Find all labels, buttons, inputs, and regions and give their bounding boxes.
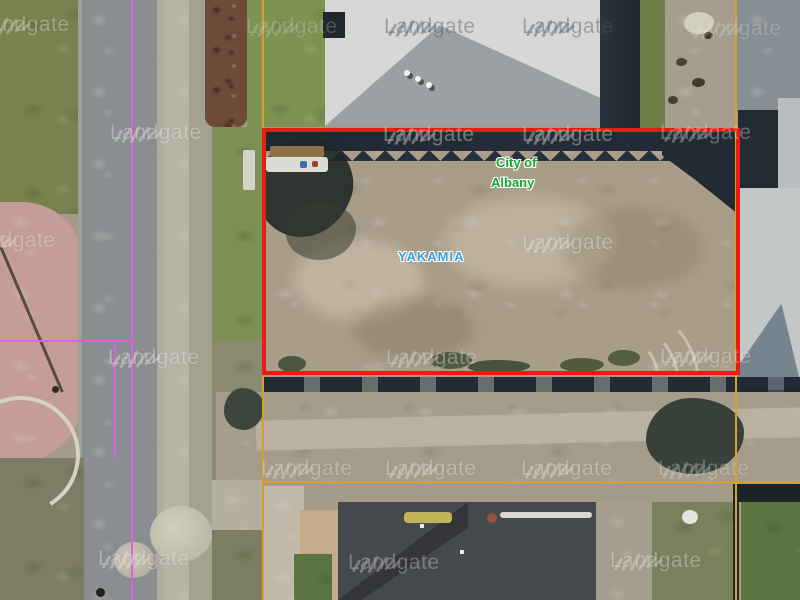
roof-vent-3 <box>426 82 432 88</box>
road <box>78 0 166 600</box>
lot-boundary-south <box>263 481 800 483</box>
fence-band-south <box>737 484 800 502</box>
ridge-dot-red <box>487 513 497 523</box>
authority-label-line2: Albany <box>491 173 536 193</box>
front-lawn-north <box>247 0 325 127</box>
east-roof-north <box>737 0 800 112</box>
pole-dot <box>52 386 59 393</box>
south-driveway <box>596 502 658 600</box>
solar-panel-array-row1 <box>420 524 560 549</box>
grass-verge-northwest <box>0 0 80 214</box>
manhole-circle-large <box>150 506 212 562</box>
mulch-garden-bed <box>205 0 247 127</box>
authority-label: City of Albany <box>496 153 536 193</box>
roof-vent-1 <box>404 70 410 76</box>
east-roof-small <box>778 98 800 190</box>
road-boundary-vertical-short <box>114 341 116 459</box>
road-centreline <box>131 0 133 600</box>
grass-strip-east <box>640 0 665 128</box>
east-roof-main <box>738 188 800 306</box>
roof-vent-2 <box>415 76 421 82</box>
locality-label: YAKAMIA <box>398 249 464 264</box>
south-path-west <box>212 480 264 532</box>
house-east-shadow <box>600 0 640 128</box>
ridge-tarp-yellow <box>404 512 452 523</box>
ridge-pipe-white <box>500 512 592 518</box>
north-house-roof-facet <box>325 0 643 126</box>
pole-dot-south <box>96 588 105 597</box>
north-house-roof <box>325 0 643 126</box>
south-scrub-west <box>212 530 264 600</box>
fence-shadow-strip <box>262 377 800 392</box>
aerial-map-canvas[interactable]: City of Albany YAKAMIA LandgateLandgateL… <box>0 0 800 600</box>
authority-label-line1: City of <box>496 153 536 173</box>
white-dot-backyard <box>682 510 698 524</box>
south-backyard-right <box>741 502 800 600</box>
trailer-on-verge <box>243 150 255 190</box>
roof-skylight-box <box>323 12 345 38</box>
manhole-circle-small <box>114 542 154 578</box>
south-lawn <box>294 554 332 600</box>
lawn-strip-west-of-parcel <box>212 127 264 341</box>
solar-panel-array-row2 <box>460 550 538 573</box>
